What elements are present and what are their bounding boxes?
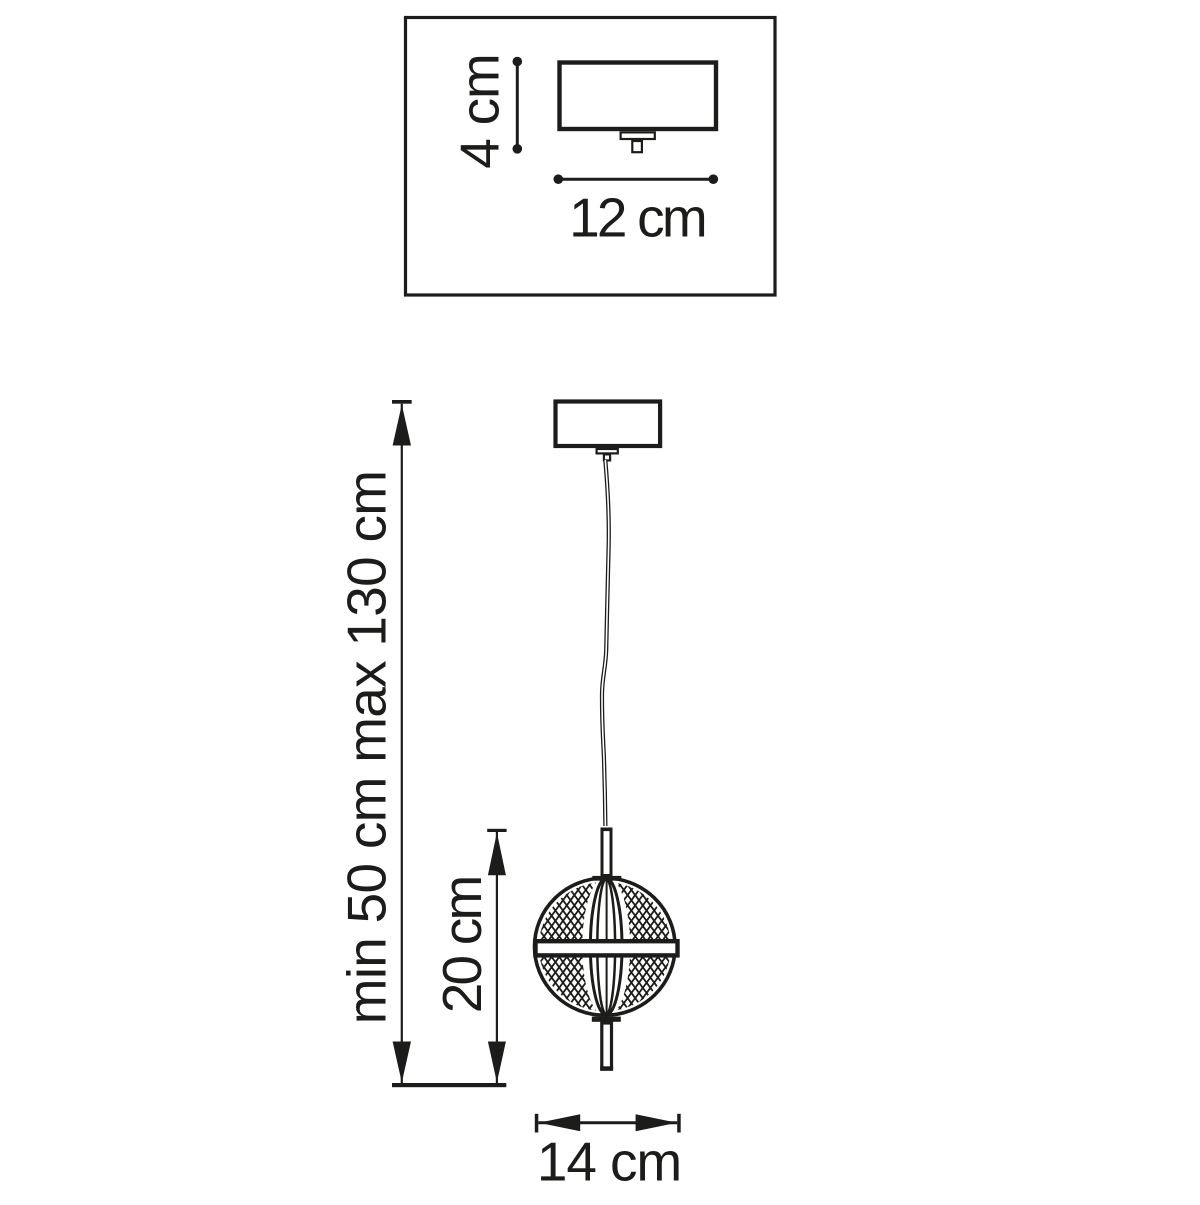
svg-text:4 cm: 4 cm — [449, 54, 511, 168]
svg-text:14 cm: 14 cm — [537, 1131, 681, 1193]
svg-text:20 cm: 20 cm — [431, 878, 493, 1014]
svg-text:12 cm: 12 cm — [569, 187, 705, 249]
svg-text:min 50 cm max 130 cm: min 50 cm max 130 cm — [336, 471, 398, 1025]
